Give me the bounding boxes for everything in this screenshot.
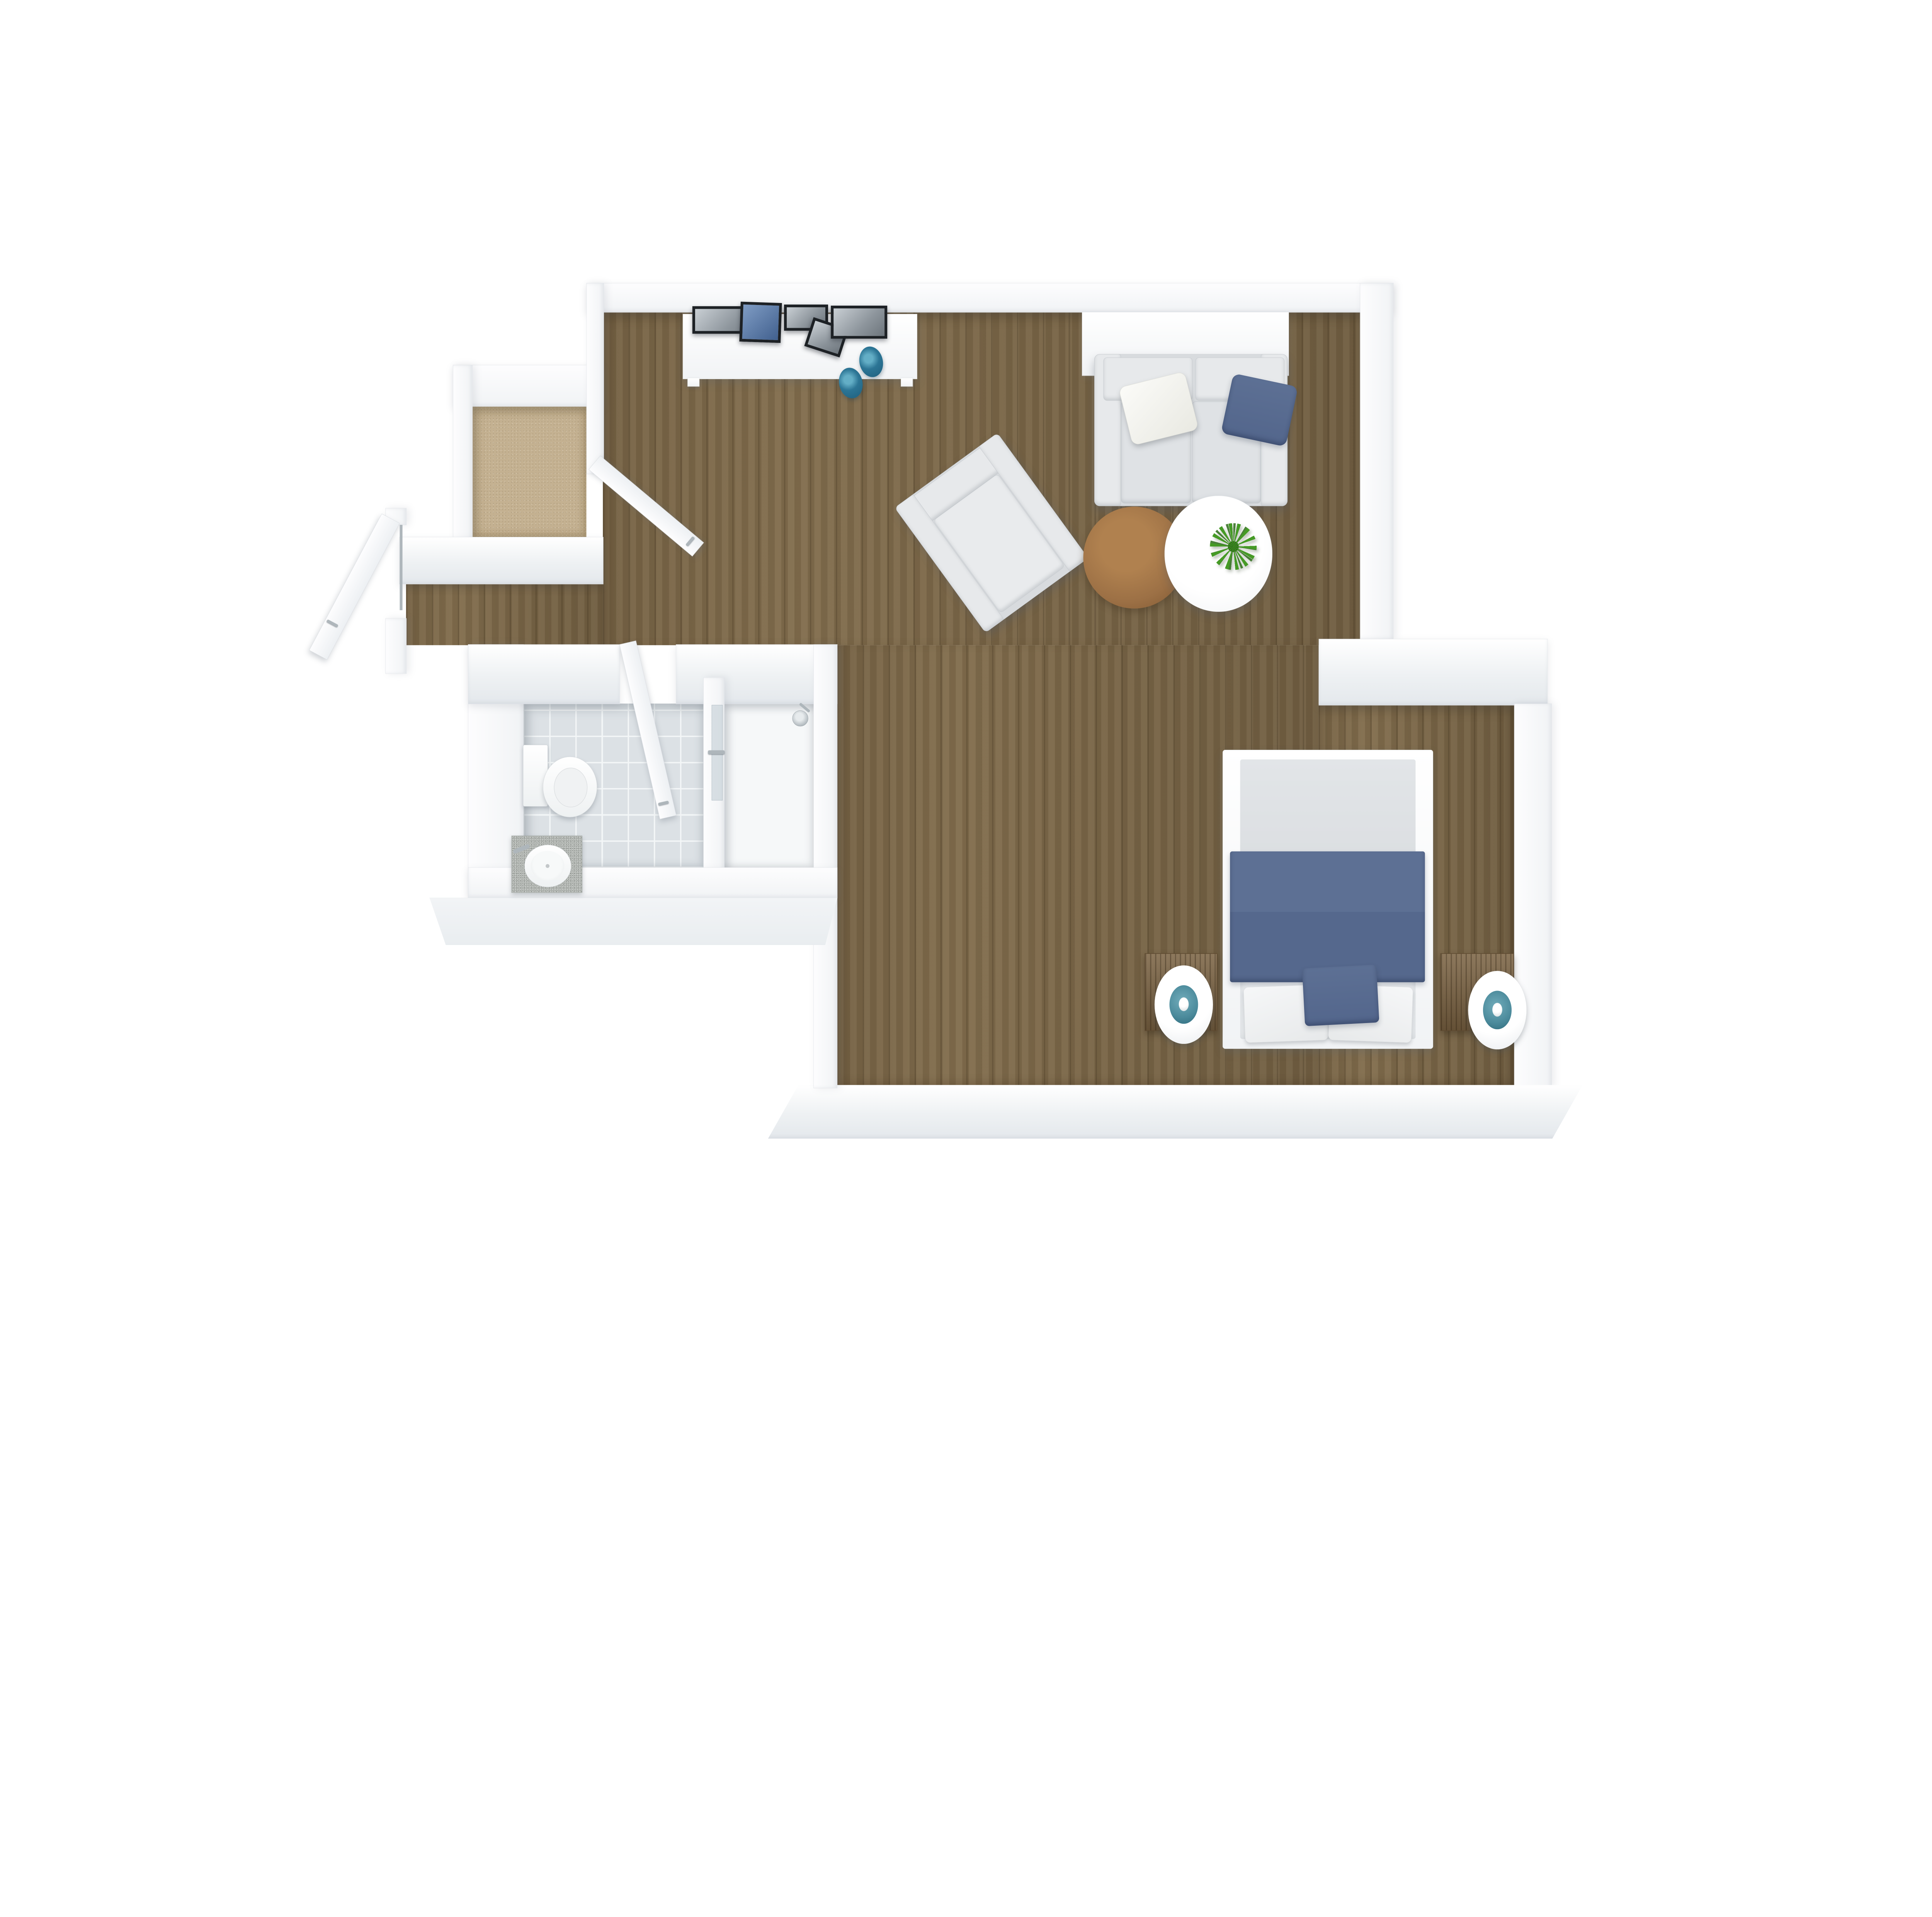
toilet-seat [554,768,587,807]
picture-frame-2 [739,301,782,343]
floor-shower [724,703,814,868]
wall-nook-top [1319,639,1548,705]
bed-blanket [1230,851,1425,982]
table-lamp-right-bulb [1492,1003,1502,1017]
table-lamp-left-bulb [1179,998,1189,1011]
bed-folded-duvet [1240,759,1416,854]
bed-accent-cushion [1302,965,1379,1026]
wall-closet-top [453,365,604,407]
wall-bottom [768,1085,1588,1139]
bathroom-door-handle [658,801,669,806]
console-leg-left [687,378,699,386]
wall-closet-left [453,365,473,540]
wall-bathroom-right [813,644,837,1088]
wall-bathroom-top-left [468,644,620,704]
closet-door-handle [685,536,695,546]
entry-door-frame-hinge [400,525,402,610]
shower-glass-handle [708,750,724,754]
console-leg-right [901,378,913,386]
floor-closet-carpet [472,406,587,537]
wall-entry-lower-stub [385,618,406,674]
floor-entry-vestibule [406,584,603,645]
wall-closet-divider [587,283,604,474]
picture-frame-5 [831,306,887,339]
wall-right-upper [1360,283,1394,639]
sink-drain [546,864,549,868]
floorplan-stage [0,0,1932,1366]
wall-closet-bottom [399,537,604,584]
potted-plant [1210,523,1257,570]
bathroom-foundation-apron [429,898,837,945]
shower-head [792,710,808,726]
entry-door-handle [327,619,338,627]
